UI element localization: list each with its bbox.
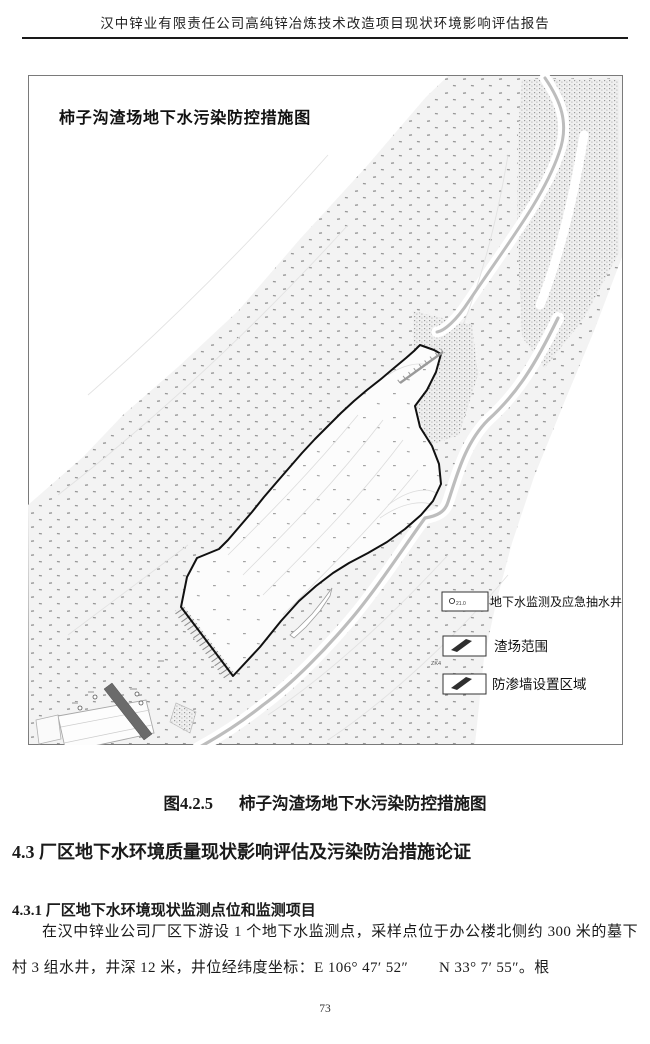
caption-title: 柿子沟渣场地下水污染防控措施图 [239,794,487,813]
small-structure-outline [36,715,61,744]
body-paragraph: 在汉中锌业公司厂区下游设 1 个地下水监测点，采样点位于办公楼北侧约 300 米… [12,914,638,986]
legend-label-cutoff: 防渗墙设置区域 [492,677,587,692]
document-page: 汉中锌业有限责任公司高纯锌冶炼技术改造项目现状环境影响评估报告 [0,0,650,1044]
page-number: 73 [0,1003,650,1015]
section-heading-4-3: 4.3 厂区地下水环境质量现状影响评估及污染防治措施论证 [12,838,638,864]
page-header: 汉中锌业有限责任公司高纯锌冶炼技术改造项目现状环境影响评估报告 [0,12,650,32]
header-rule [22,37,628,39]
caption-number: 图4.2.5 [164,794,214,813]
map-title: 柿子沟渣场地下水污染防控措施图 [59,104,311,128]
legend-label-well: 地下水监测及应急抽水井 [490,594,622,609]
figure-caption: 图4.2.5柿子沟渣场地下水污染防控措施图 [12,790,638,814]
figure-map: 21.0 地下水监测及应急抽水井 渣场范围 ZK4 防渗墙设置区域 柿子沟渣场地… [28,75,623,745]
borehole-marker-label: ZK4 [431,661,441,667]
map-canvas: 21.0 地下水监测及应急抽水井 渣场范围 ZK4 防渗墙设置区域 [28,75,623,745]
well-value-label: 21.0 [456,601,466,607]
legend-label-slag: 渣场范围 [494,639,548,654]
